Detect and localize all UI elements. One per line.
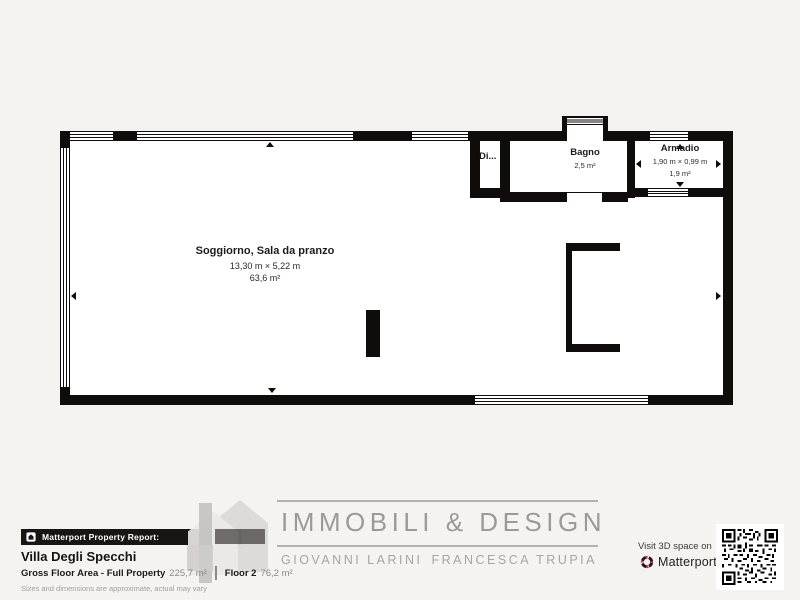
brand-title: IMMOBILI & DESIGN (281, 507, 606, 538)
area-divider (215, 566, 217, 580)
room-area-soggiorno: 63,6 m² (145, 273, 385, 283)
wall-left-top (60, 131, 70, 148)
property-report-page: Soggiorno, Sala da pranzo 13,30 m × 5,22… (0, 0, 800, 600)
arrow-marker-bottom-wall (268, 388, 276, 393)
matterport-wordmark: Matterport (658, 555, 717, 569)
matterport-house-icon (26, 532, 36, 542)
room-dims-soggiorno: 13,30 m × 5,22 m (145, 261, 385, 271)
wall-top-4 (468, 131, 562, 141)
stair-wall-top (566, 243, 620, 251)
matterport-logo: Matterport (640, 555, 717, 569)
wall-bottom-2 (648, 395, 733, 405)
window-top-2 (137, 131, 353, 141)
window-armadio-bottom (648, 188, 688, 197)
area-summary: Gross Floor Area - Full Property 225,7 m… (21, 566, 293, 580)
wall-top-2 (113, 131, 137, 141)
arrow-marker-right-wall (716, 292, 721, 300)
window-bagno-bump (567, 117, 603, 125)
room-label-bagno: Bagno 2,5 m² (540, 147, 630, 170)
agent-names: GIOVANNI LARINI FRANCESCA TRUPIA (281, 553, 597, 567)
disclaimer: Sizes and dimensions are approximate, ac… (21, 584, 207, 593)
room-area-bagno: 2,5 m² (540, 161, 630, 170)
matterport-pinwheel-icon (640, 555, 654, 569)
qr-code (722, 529, 778, 585)
arrow-marker-armadio-bottom (676, 182, 684, 187)
wall-top-3 (353, 131, 412, 141)
stair-wall-bottom (566, 344, 620, 352)
window-left (60, 148, 70, 387)
report-bar-label: Matterport Property Report: (42, 532, 159, 542)
door-bagno (567, 193, 602, 202)
pillar (366, 310, 380, 357)
room-name-armadio: Armadio (636, 143, 724, 154)
gross-area-label: Gross Floor Area - Full Property (21, 568, 165, 579)
room-area-armadio: 1,9 m² (636, 169, 724, 178)
logo-dark-band (215, 529, 265, 544)
room-bagno-bump-floor (567, 125, 603, 141)
property-name: Villa Degli Specchi (21, 549, 136, 564)
wall-bottom-1 (60, 395, 475, 405)
window-top-1 (68, 131, 113, 141)
brand-rule-bottom (277, 545, 598, 547)
arrow-marker-left-wall (71, 292, 76, 300)
room-name-bagno: Bagno (540, 147, 630, 158)
room-dims-armadio: 1,90 m × 0,99 m (636, 157, 724, 166)
room-name-disimpegno: Di... (479, 151, 496, 162)
qr-card (716, 524, 784, 590)
room-label-soggiorno: Soggiorno, Sala da pranzo 13,30 m × 5,22… (145, 245, 385, 283)
room-label-armadio: Armadio 1,90 m × 0,99 m 1,9 m² (636, 143, 724, 178)
gross-area-value: 225,7 m² (169, 568, 207, 579)
floor-value: 76,2 m² (260, 568, 292, 579)
room-name-soggiorno: Soggiorno, Sala da pranzo (145, 245, 385, 257)
room-label-disimpegno: Di... (479, 151, 505, 162)
wall-bagno-bottom (500, 192, 628, 202)
agent-name-1: GIOVANNI LARINI (281, 553, 422, 567)
agent-name-2: FRANCESCA TRUPIA (432, 553, 598, 567)
wall-right (723, 131, 733, 405)
window-top-3 (412, 131, 468, 141)
visit-label: Visit 3D space on (638, 541, 712, 552)
floor-label: Floor 2 (225, 568, 257, 579)
brand-rule-top (277, 500, 598, 502)
window-bottom (475, 395, 648, 405)
window-armadio-top (650, 131, 688, 141)
stair-wall-left (566, 243, 572, 352)
arrow-marker-top-wall (266, 142, 274, 147)
